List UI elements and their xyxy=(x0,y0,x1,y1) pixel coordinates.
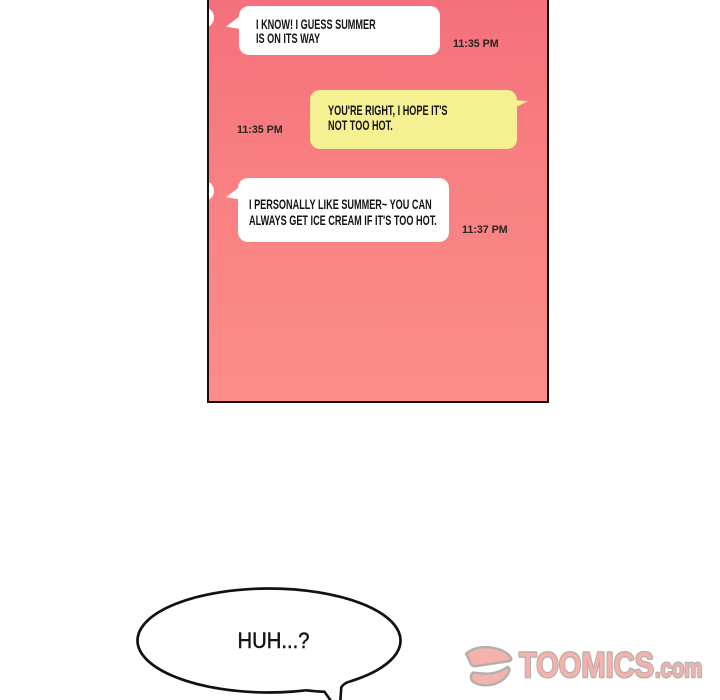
svg-text:.com: .com xyxy=(655,655,702,684)
svg-text:HUH...?: HUH...? xyxy=(238,629,310,653)
svg-text:TOOMICS: TOOMICS xyxy=(519,645,654,684)
